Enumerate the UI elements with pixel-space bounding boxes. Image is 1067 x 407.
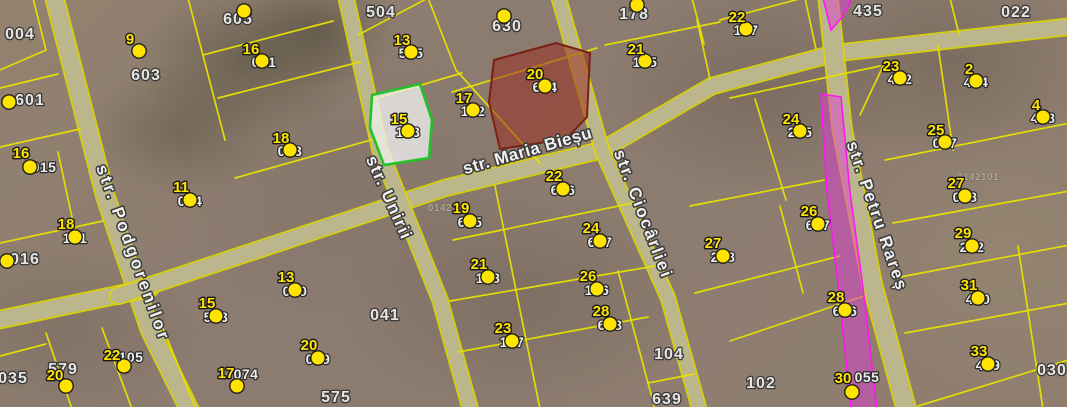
survey-point-number: 17 — [456, 90, 473, 107]
street-label: str. Podgorenilor — [92, 162, 174, 344]
parcel-line — [618, 271, 655, 407]
parcel-line — [0, 344, 46, 356]
block-label: 575 — [321, 389, 351, 406]
survey-point-number: 27 — [705, 235, 722, 252]
survey-point-number: 20 — [301, 337, 318, 354]
survey-point-number: 20 — [527, 66, 544, 83]
survey-point-number: 24 — [783, 111, 800, 128]
parcel-line — [1018, 246, 1043, 407]
parcel-line — [188, 0, 225, 140]
survey-point-number: 29 — [955, 225, 972, 242]
survey-point-tag: 055 — [855, 369, 880, 385]
survey-point-number: 16 — [13, 145, 30, 162]
survey-point-number: 26 — [801, 203, 818, 220]
survey-point-number: 28 — [593, 303, 610, 320]
survey-point-number: 18 — [58, 216, 75, 233]
survey-point-number: 15 — [199, 295, 216, 312]
survey-point-number: 30 — [835, 370, 852, 387]
map-canvas[interactable]: str. Podgorenilorstr. Uniriistr. Maria B… — [0, 0, 1067, 407]
survey-point-number: 17 — [218, 365, 235, 382]
survey-point-number: 31 — [961, 277, 978, 294]
survey-point-number: 4 — [1032, 97, 1041, 114]
survey-point-number: 24 — [583, 220, 600, 237]
survey-point-number: 15 — [391, 111, 408, 128]
survey-point-number: 28 — [828, 289, 845, 306]
survey-point-number: 13 — [278, 269, 295, 286]
cadastral-map-svg: str. Podgorenilorstr. Uniriistr. Maria B… — [0, 0, 1067, 407]
survey-point-number: 22 — [729, 9, 746, 26]
parcel-line — [218, 62, 360, 98]
parcel-line — [885, 122, 1067, 160]
parcel-line — [755, 99, 786, 200]
survey-point-number: 20 — [47, 367, 64, 384]
block-label: 102 — [746, 375, 776, 392]
survey-point-number: 2 — [965, 61, 973, 78]
parcel-line — [697, 20, 710, 79]
parcel-line — [805, 0, 816, 49]
block-label: 435 — [853, 3, 883, 20]
block-label: 104 — [654, 346, 684, 363]
parcel-line — [0, 221, 103, 243]
block-label: 041 — [370, 307, 400, 324]
block-label: 504 — [366, 4, 396, 21]
survey-point-number: 33 — [971, 343, 988, 360]
survey-point-number: 23 — [495, 320, 512, 337]
survey-point-number: 13 — [394, 32, 411, 49]
block-label: 603 — [131, 67, 161, 84]
survey-point-number: 21 — [471, 256, 488, 273]
survey-point-number: 21 — [628, 41, 645, 58]
block-label: 004 — [5, 26, 35, 43]
block-label: 601 — [15, 92, 45, 109]
parcel-line — [950, 0, 959, 34]
survey-point-number: 16 — [243, 41, 260, 58]
survey-point-number: 22 — [104, 347, 121, 364]
survey-point-number: 18 — [273, 130, 290, 147]
parcel-line — [780, 206, 803, 293]
block-label: 022 — [1001, 4, 1031, 21]
cadastral-id-label: 0142 — [428, 203, 452, 214]
block-label: 030 — [1037, 362, 1067, 379]
survey-point-number: 11 — [173, 179, 189, 196]
parcel-line — [495, 186, 540, 407]
survey-point-dot[interactable] — [0, 254, 14, 268]
survey-point-dot[interactable] — [630, 0, 644, 12]
survey-point-number: 9 — [126, 31, 134, 48]
survey-point-number: 23 — [883, 58, 900, 75]
survey-point-number: 27 — [948, 175, 965, 192]
survey-point-number: 22 — [546, 168, 563, 185]
parcel-line — [893, 190, 1067, 223]
survey-point-dot[interactable] — [2, 95, 16, 109]
survey-point-number: 19 — [453, 200, 470, 217]
survey-point-dot[interactable] — [237, 4, 251, 18]
parcel-line — [0, 74, 58, 88]
survey-point-dot[interactable] — [497, 9, 511, 23]
parcel-line — [235, 136, 385, 178]
block-label: 035 — [0, 370, 28, 387]
survey-point-number: 25 — [928, 122, 945, 139]
block-label: 639 — [652, 391, 682, 407]
survey-point-number: 26 — [580, 268, 597, 285]
